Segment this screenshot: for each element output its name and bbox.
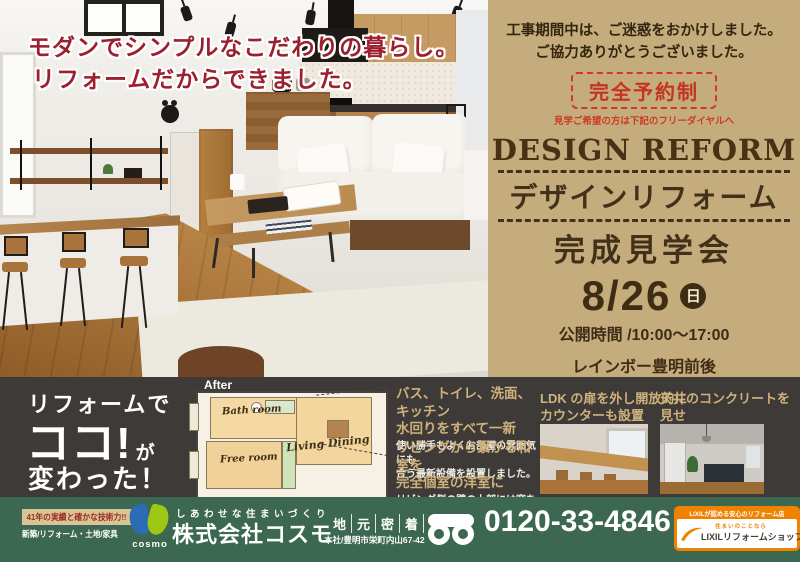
mini-window2	[746, 446, 760, 468]
sofa-base	[350, 220, 470, 250]
side-table	[464, 150, 488, 220]
floorplan-after: Bath room Living Dining Free room	[196, 391, 388, 499]
feature1-heading-line2: 水回りをすべて一新	[396, 420, 538, 438]
coffee-mug	[230, 174, 243, 190]
shelf-plant	[103, 164, 113, 174]
title-english: DESIGN REFORM	[488, 133, 800, 167]
mini-plant	[687, 456, 698, 472]
floorplan-room-bath	[210, 397, 298, 439]
open-hours: 公開時間 /10:00～17:00	[488, 321, 800, 345]
mini-floor	[660, 482, 764, 494]
lixil-subtext: 住まいのことなら	[715, 522, 767, 530]
range-hood-chimney	[328, 0, 354, 30]
floorplan-room-free	[206, 441, 282, 489]
flyer-root: モダンでシンプルなこだわりの暮らし。 リフォームだからできました。 工事期間中は…	[0, 0, 800, 562]
leader-line	[316, 387, 386, 395]
table-leg	[328, 232, 334, 262]
reservation-badge: 完全予約制	[571, 72, 717, 109]
freedial-icon	[424, 514, 478, 546]
mini-floor	[540, 480, 648, 494]
lixil-badge: LIXILが認める安心のリフォーム店 住まいのことなら LIXILリフォームショ…	[674, 506, 800, 551]
greeting-line1: 工事期間中は、ご迷惑をおかけしました。	[488, 20, 800, 42]
catch-line3: 変わった！	[28, 459, 168, 496]
headline-line2: リフォームだからできました。	[32, 60, 367, 94]
counter-photo	[540, 424, 648, 494]
feature2-heading-line1: リビングから繋がる和室を	[396, 439, 538, 474]
wall-shelf	[10, 148, 168, 154]
before-after-panel: リフォームで ココ! が 変わった！ After Bath room Livin…	[0, 377, 800, 497]
table-leg	[252, 248, 255, 278]
wall-clock-icon	[160, 100, 180, 126]
shelf-bracket	[20, 140, 22, 190]
locality-char: 地	[328, 514, 352, 533]
feature2-heading-line2: 完全個室の洋室に	[396, 474, 538, 492]
footer-bar: 41年の実績と確かな技術力!! 新築/リフォーム・土地/家具 cosmo しあわ…	[0, 497, 800, 562]
left-window	[0, 52, 36, 218]
after-label: After	[204, 378, 232, 392]
feature1-heading-line1: バス、トイレ、洗面、キッチン	[396, 385, 538, 420]
company-name: 株式会社コスモ	[172, 517, 333, 549]
concrete-photo	[660, 424, 764, 494]
headline-line1: モダンでシンプルなこだわりの暮らし。	[28, 28, 459, 62]
event-name: 完成見学会	[488, 225, 800, 270]
mini-ceiling	[660, 424, 764, 444]
event-date-row: 8/26 日	[488, 272, 800, 320]
day-badge: 日	[680, 283, 706, 309]
wall-shelf	[10, 178, 168, 184]
floorplan-room-living	[296, 397, 372, 465]
reservation-note: 見学ご希望の方は下記のフリーダイヤルへ	[488, 113, 800, 127]
locality-char: 元	[352, 514, 376, 533]
locality-char: 着	[400, 514, 424, 533]
event-panel: 工事期間中は、ご迷惑をおかけしました。 ご協力ありがとうございました。 完全予約…	[488, 0, 800, 377]
shelf-bracket	[160, 136, 162, 190]
locality-badge: 地元密着	[328, 514, 424, 534]
lixil-body: 住まいのことなら LIXILリフォームショップ	[677, 519, 797, 548]
feature2-heading: リビングから繋がる和室を 完全個室の洋室に	[396, 439, 538, 492]
company-address: 本社/豊明市栄町内山67-42	[324, 534, 425, 546]
cosmo-logo-icon	[128, 503, 172, 539]
services-label: 新築/リフォーム・土地/家具	[22, 528, 118, 540]
cosmo-logo-text: cosmo	[128, 539, 172, 550]
lixil-shop-name: LIXILリフォームショップ	[701, 530, 800, 543]
title-japanese: デザインリフォーム	[488, 176, 800, 216]
feature1-heading: バス、トイレ、洗面、キッチン 水回りをすべて一新	[396, 385, 538, 438]
dashed-divider	[498, 170, 790, 173]
event-date: 8/26	[582, 272, 672, 320]
interior-photo: モダンでシンプルなこだわりの暮らし。 リフォームだからできました。	[0, 0, 488, 377]
dashed-divider	[498, 219, 790, 222]
locality-char: 密	[376, 514, 400, 533]
lixil-header: LIXILが認める安心のリフォーム店	[680, 508, 794, 518]
experience-badge: 41年の実績と確かな技術力!!	[22, 509, 131, 525]
footstool	[178, 346, 264, 377]
phone-number: 0120-33-4846	[484, 505, 671, 539]
bar-stool	[120, 228, 148, 332]
greeting-line2: ご協力ありがとうございました。	[488, 42, 800, 64]
floorplan-balcony	[189, 451, 199, 479]
photo2-caption-line1: 天井のコンクリートを見せ	[660, 391, 800, 425]
mini-pendant	[706, 424, 707, 436]
shelf-radio	[124, 168, 142, 178]
bar-stool	[2, 236, 28, 332]
floorplan-balcony	[189, 403, 199, 431]
bar-stool	[60, 232, 86, 328]
shelf-bracket	[90, 138, 92, 190]
mini-island	[704, 464, 744, 482]
venue-name: レインボー豊明前後	[488, 353, 800, 377]
